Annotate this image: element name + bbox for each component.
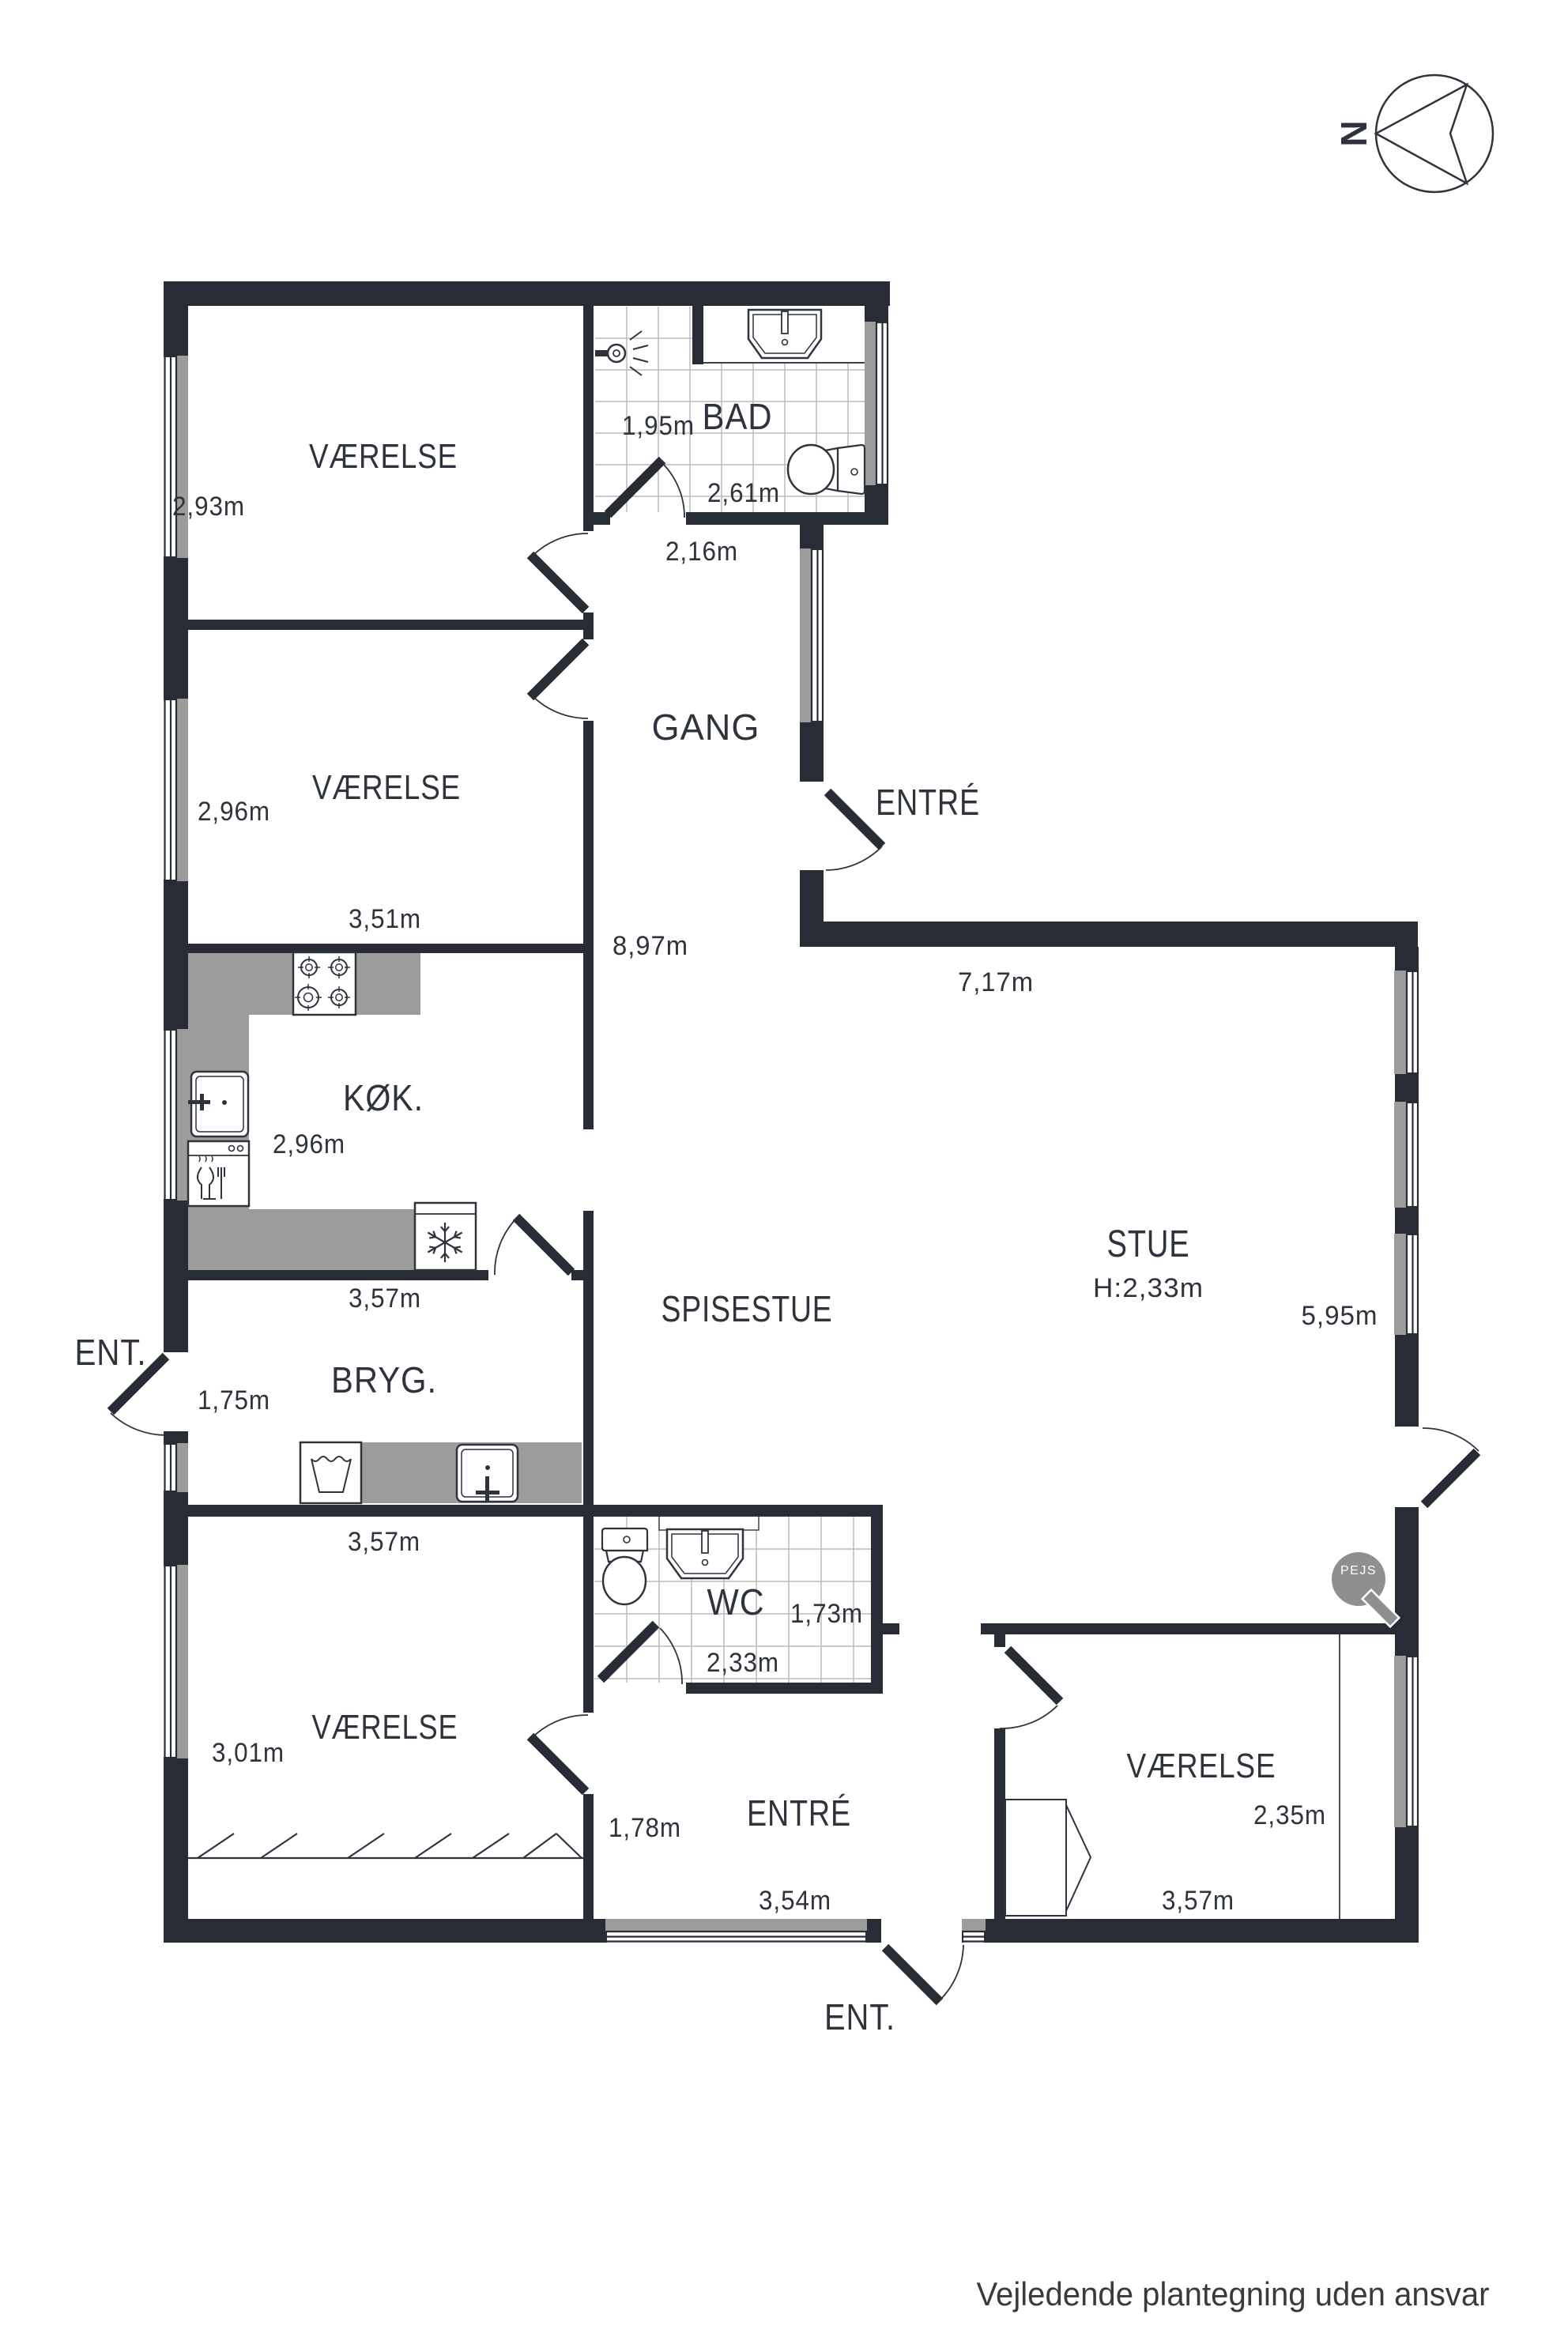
svg-text:2,33m: 2,33m xyxy=(707,1648,779,1678)
svg-text:8,97m: 8,97m xyxy=(612,931,688,961)
svg-text:N: N xyxy=(1333,120,1374,146)
svg-text:1,73m: 1,73m xyxy=(790,1599,863,1629)
svg-text:GANG: GANG xyxy=(652,707,760,748)
svg-text:VÆRELSE: VÆRELSE xyxy=(309,437,458,476)
svg-text:2,16m: 2,16m xyxy=(665,537,738,567)
svg-text:2,61m: 2,61m xyxy=(707,478,780,508)
svg-text:VÆRELSE: VÆRELSE xyxy=(312,768,461,807)
svg-text:3,01m: 3,01m xyxy=(212,1738,285,1768)
svg-text:2,93m: 2,93m xyxy=(172,492,245,522)
svg-text:ENTRÉ: ENTRÉ xyxy=(747,1792,851,1834)
svg-text:5,95m: 5,95m xyxy=(1302,1301,1378,1331)
svg-text:1,78m: 1,78m xyxy=(609,1813,681,1843)
svg-text:2,35m: 2,35m xyxy=(1253,1800,1326,1830)
svg-text:ENT.: ENT. xyxy=(75,1332,147,1373)
svg-text:STUE: STUE xyxy=(1107,1223,1190,1265)
svg-text:3,57m: 3,57m xyxy=(349,1283,421,1314)
svg-text:KØK.: KØK. xyxy=(343,1077,424,1118)
svg-text:3,51m: 3,51m xyxy=(349,904,421,934)
svg-text:1,75m: 1,75m xyxy=(198,1385,270,1415)
svg-text:VÆRELSE: VÆRELSE xyxy=(312,1708,458,1747)
svg-text:ENT.: ENT. xyxy=(824,1996,895,2037)
svg-text:ENTRÉ: ENTRÉ xyxy=(876,782,980,823)
svg-text:1,95m: 1,95m xyxy=(622,411,695,441)
svg-text:Vejledende plantegning uden an: Vejledende plantegning uden ansvar xyxy=(977,2275,1490,2312)
svg-text:VÆRELSE: VÆRELSE xyxy=(1127,1747,1276,1785)
svg-text:3,54m: 3,54m xyxy=(759,1886,831,1916)
svg-text:SPISESTUE: SPISESTUE xyxy=(661,1288,833,1329)
svg-text:PEJS: PEJS xyxy=(1340,1564,1377,1577)
svg-text:3,57m: 3,57m xyxy=(1162,1886,1234,1916)
svg-text:2,96m: 2,96m xyxy=(198,797,270,827)
svg-text:BRYG.: BRYG. xyxy=(331,1359,437,1400)
svg-text:3,57m: 3,57m xyxy=(348,1527,420,1557)
svg-text:BAD: BAD xyxy=(703,396,773,437)
svg-text:7,17m: 7,17m xyxy=(958,967,1034,997)
svg-text:2,96m: 2,96m xyxy=(273,1129,345,1159)
svg-text:WC: WC xyxy=(707,1581,765,1623)
svg-text:H:2,33m: H:2,33m xyxy=(1093,1273,1204,1303)
